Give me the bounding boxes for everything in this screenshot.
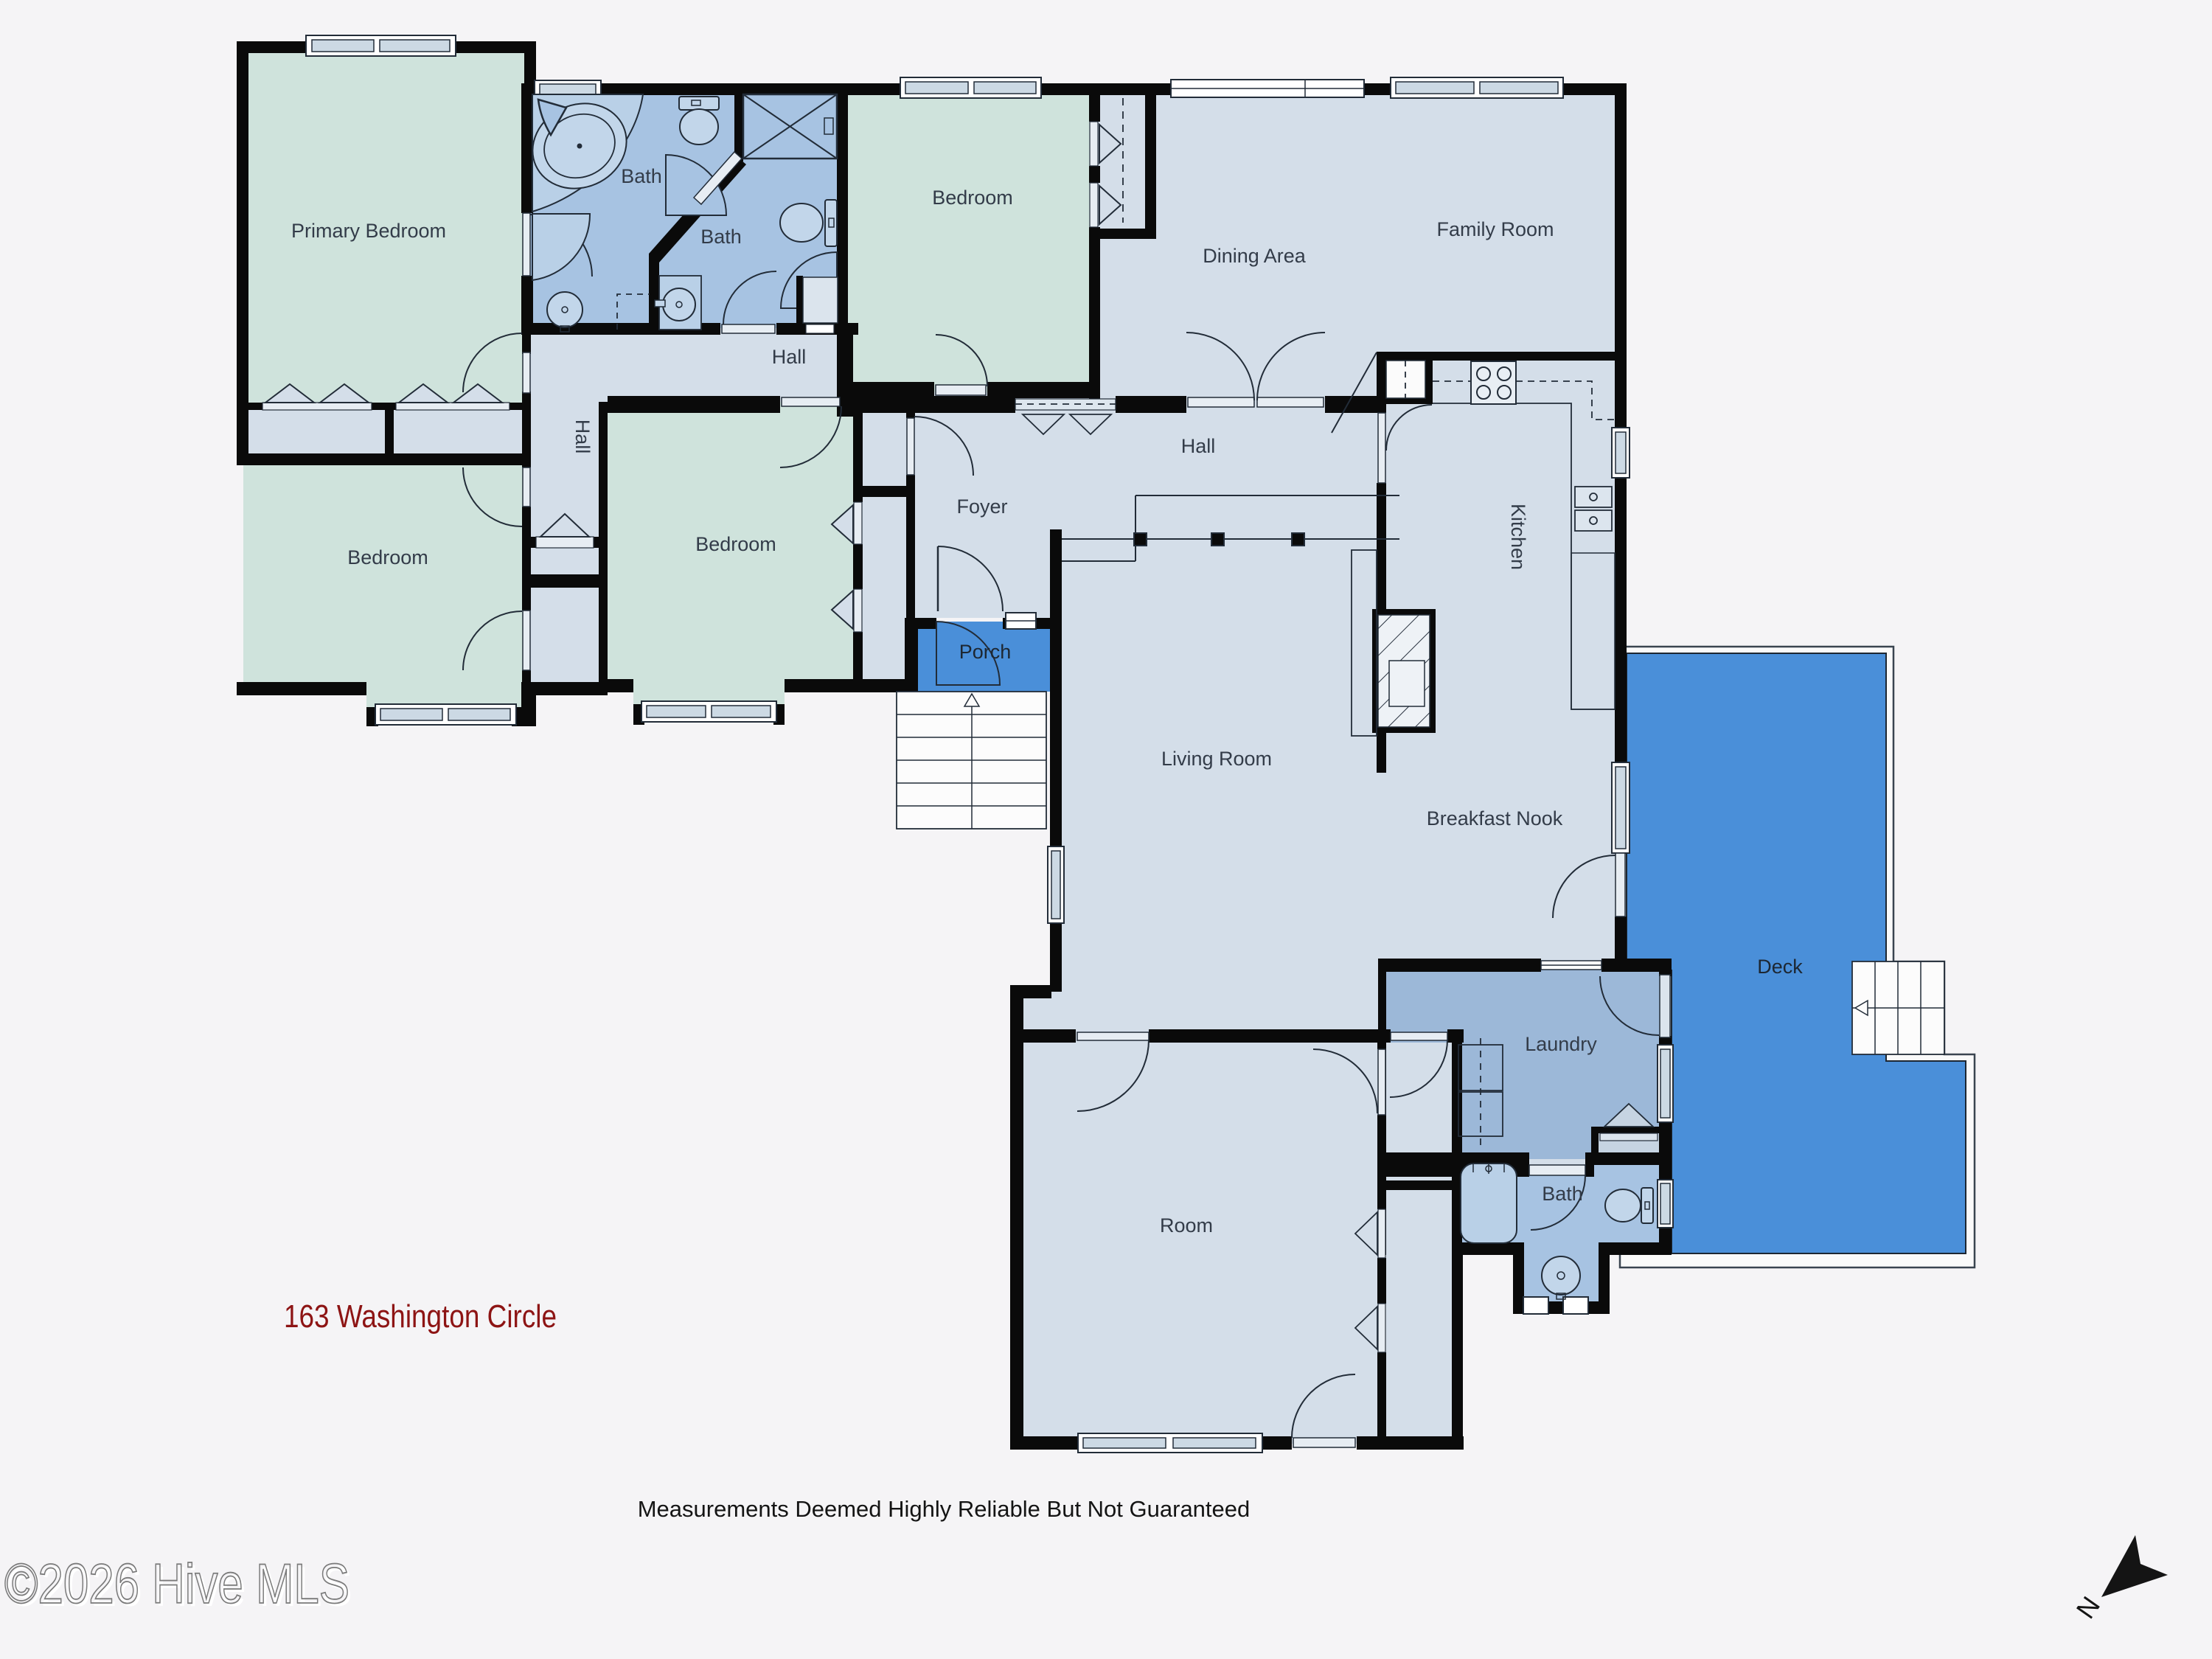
svg-text:Dining Area: Dining Area	[1203, 245, 1307, 267]
svg-text:Hall: Hall	[1181, 435, 1216, 457]
svg-text:Porch: Porch	[959, 641, 1012, 663]
svg-text:Measurements Deemed Highly Rel: Measurements Deemed Highly Reliable But …	[638, 1496, 1251, 1522]
svg-text:Bedroom: Bedroom	[695, 533, 776, 555]
svg-text:163 Washington Circle: 163 Washington Circle	[284, 1298, 557, 1335]
svg-text:©2026 Hive MLS: ©2026 Hive MLS	[4, 1553, 349, 1615]
svg-text:Breakfast Nook: Breakfast Nook	[1427, 807, 1563, 829]
svg-text:Living Room: Living Room	[1161, 748, 1272, 770]
svg-text:Kitchen: Kitchen	[1507, 504, 1529, 570]
svg-text:Bath: Bath	[700, 226, 742, 248]
svg-text:Laundry: Laundry	[1525, 1033, 1597, 1055]
svg-text:Family Room: Family Room	[1436, 218, 1554, 240]
svg-text:Hall: Hall	[772, 346, 807, 368]
svg-text:Hall: Hall	[571, 420, 594, 454]
svg-text:Bedroom: Bedroom	[347, 546, 428, 568]
svg-text:Room: Room	[1160, 1214, 1213, 1237]
svg-text:Bath: Bath	[621, 165, 662, 187]
svg-text:Foyer: Foyer	[956, 495, 1007, 518]
svg-text:Bath: Bath	[1542, 1183, 1583, 1205]
svg-text:Bedroom: Bedroom	[932, 187, 1013, 209]
svg-text:Deck: Deck	[1757, 956, 1803, 978]
svg-text:Primary Bedroom: Primary Bedroom	[291, 220, 446, 242]
